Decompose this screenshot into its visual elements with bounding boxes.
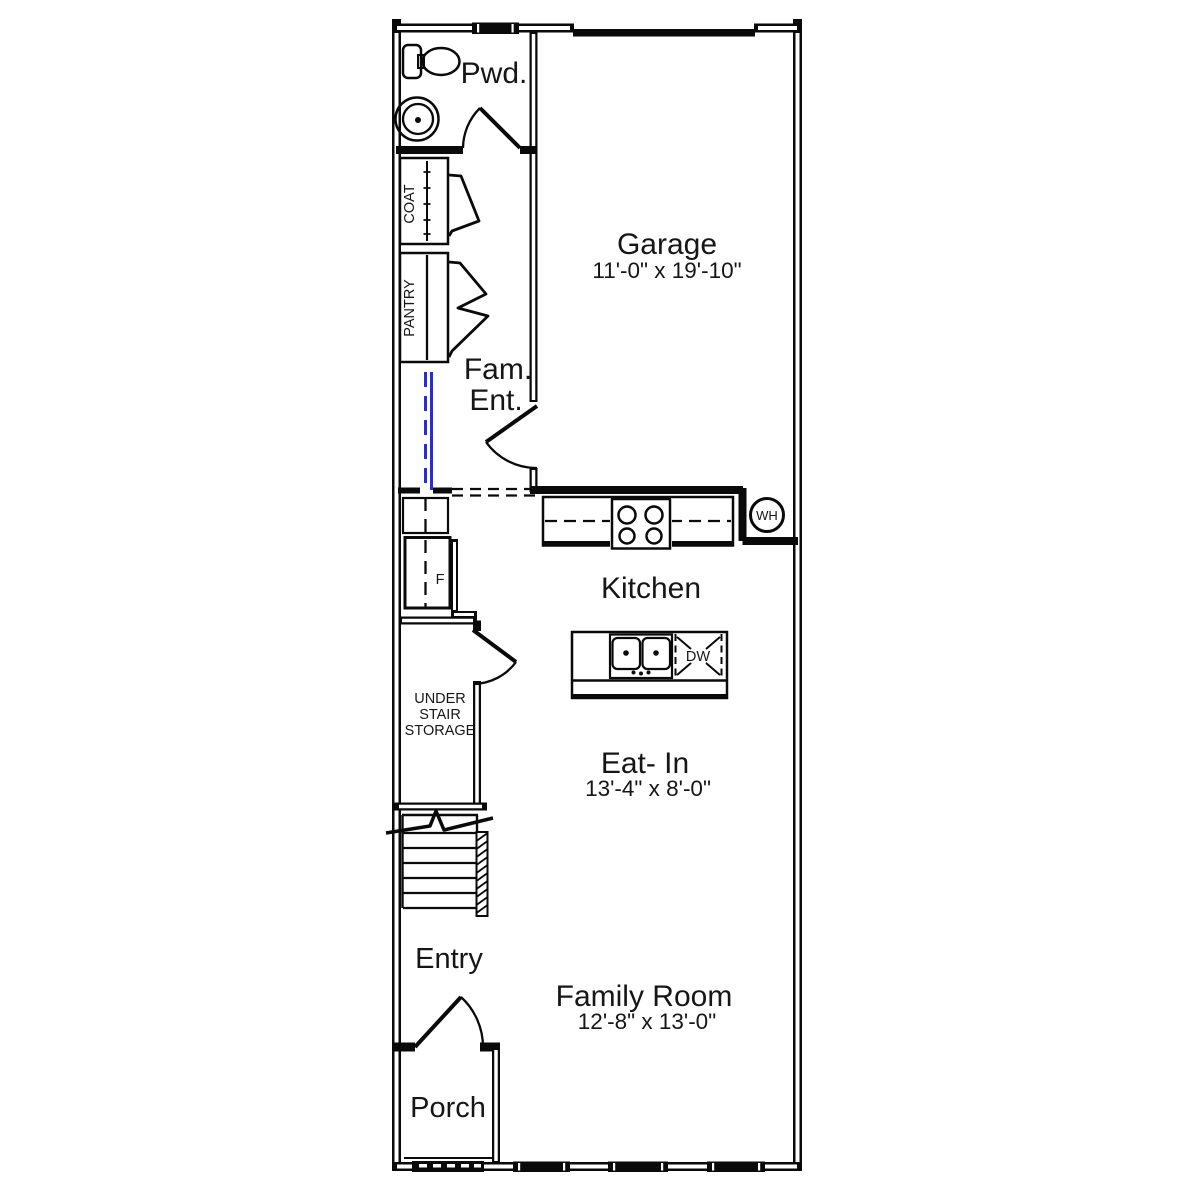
stair-rail-hatch: [477, 832, 488, 916]
window-bottom-2: [608, 1162, 668, 1173]
refrigerator-label: F: [436, 572, 445, 588]
range: [610, 498, 672, 549]
window-bottom-1: [513, 1162, 570, 1173]
water-heater: WH: [751, 499, 784, 532]
double-sink: [610, 635, 672, 679]
dishwasher-label: DW: [686, 649, 710, 665]
garage-label: Garage: [617, 228, 717, 261]
under-stair-label-line1: UNDER: [414, 691, 466, 707]
coat-label: COAT: [402, 184, 418, 223]
garage-door: [573, 29, 755, 37]
staircase: [386, 811, 493, 916]
storage-door: [473, 630, 516, 684]
pwd-label: Pwd.: [461, 57, 528, 90]
front-door: [415, 997, 483, 1047]
pantry-bifold-door: [449, 262, 488, 357]
fam-ent-label-line2: Ent.: [469, 384, 522, 417]
porch-structure: [404, 1158, 492, 1172]
floor-plan-page: WH DW F: [0, 0, 1200, 1200]
window-top-pwd: [472, 23, 519, 35]
porch-label: Porch: [410, 1092, 486, 1124]
under-stair-label-line3: STORAGE: [405, 723, 476, 739]
floor-plan-svg: WH DW F: [0, 0, 1200, 1200]
water-heater-label: WH: [756, 508, 778, 523]
coat-bifold-door: [449, 175, 479, 236]
under-stair-label-line2: STAIR: [419, 707, 461, 723]
optional-wall-blue-lines: [426, 372, 432, 490]
cased-opening-dashes: [452, 489, 537, 496]
garage-dims: 11'-0" x 19'-10": [592, 258, 741, 283]
fam-ent-label-line1: Fam.: [464, 353, 532, 386]
kitchen-label: Kitchen: [601, 572, 701, 605]
eat-in-dims: 13'-4" x 8'-0": [585, 776, 711, 801]
family-room-dims: 12'-8" x 13'-0": [578, 1009, 716, 1034]
toilet: [403, 45, 460, 78]
dishwasher: DW: [676, 634, 722, 678]
window-bottom-3: [707, 1162, 765, 1173]
stair-treads: [403, 833, 477, 908]
pedestal-sink: [396, 98, 439, 141]
powder-door: [463, 108, 520, 148]
entry-label: Entry: [415, 943, 483, 975]
kitchen-island: DW: [572, 632, 727, 698]
fridge-area: F: [403, 498, 450, 608]
pantry-label: PANTRY: [402, 279, 418, 337]
